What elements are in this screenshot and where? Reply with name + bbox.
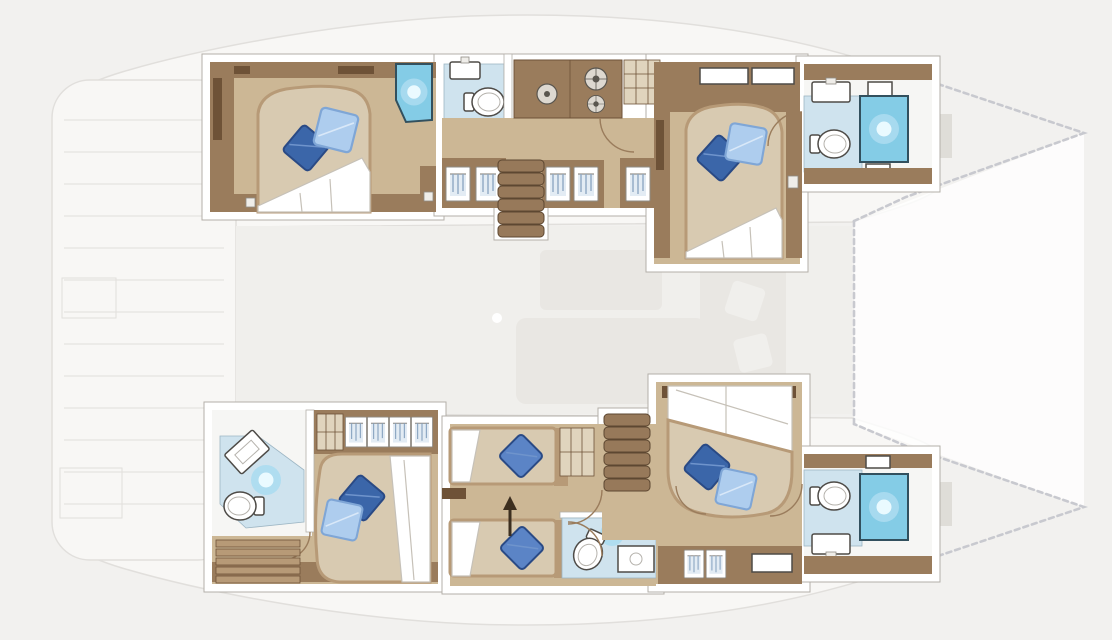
shower-cabin (860, 96, 908, 162)
island-double-bed (686, 104, 782, 258)
catamaran-floorplan (0, 0, 1112, 640)
aft-port-cabin (210, 62, 436, 212)
pillow-light-icon (313, 107, 359, 153)
single-bed-upper (450, 428, 568, 486)
forward-port-cabin (654, 62, 802, 264)
stove-burner-icon (587, 95, 604, 112)
island-double-bed (316, 454, 430, 582)
port-companionway-stairs (498, 160, 544, 237)
hanging-lockers (442, 158, 658, 208)
corner-shower (396, 64, 432, 122)
saloon-dot (492, 313, 502, 323)
starboard-companionway-stairs (602, 414, 656, 540)
aft-starboard-cabin (212, 410, 438, 584)
starboard-bow-bathroom (804, 454, 932, 574)
forward-starboard-cabin (656, 382, 802, 584)
locker-band (658, 546, 802, 584)
pillow-light-icon (725, 123, 768, 166)
island-double-bed (258, 86, 370, 212)
pillow-light-icon (321, 499, 363, 541)
floorplan-canvas (0, 0, 1112, 640)
stove-burner-icon (585, 68, 607, 90)
pillow-light-icon (715, 468, 757, 510)
port-bow-bathroom (804, 64, 932, 184)
hanging-wardrobe (314, 410, 438, 454)
shower-cabin (860, 474, 908, 540)
step-slats (216, 540, 300, 583)
island-double-bed (668, 386, 792, 517)
